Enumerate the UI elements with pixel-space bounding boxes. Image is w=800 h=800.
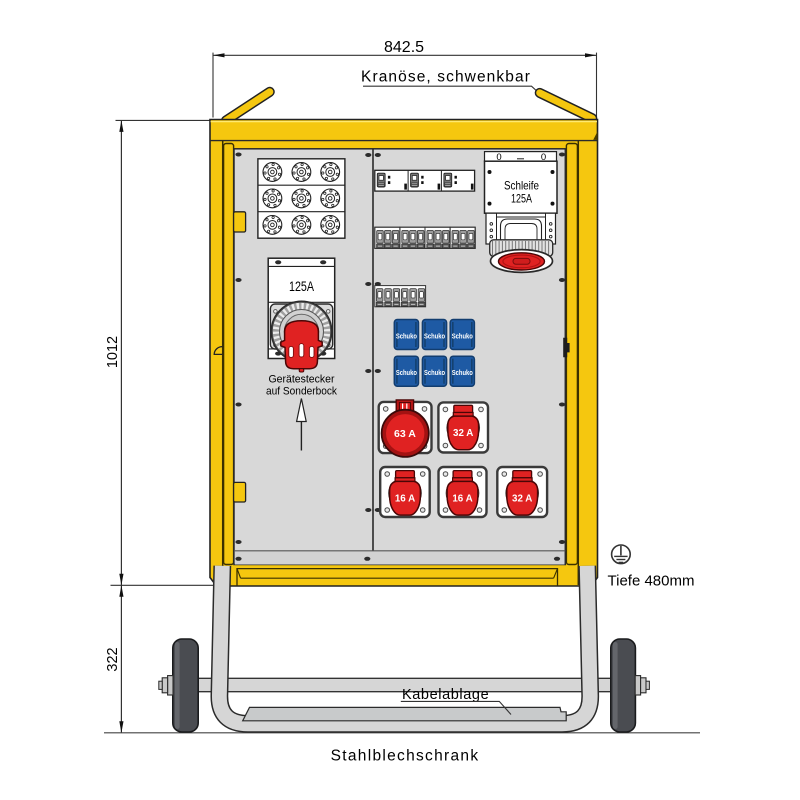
svg-text:32 A: 32 A (453, 428, 473, 439)
svg-text:Schuko: Schuko (424, 333, 445, 340)
svg-text:auf Sonderbock: auf Sonderbock (266, 386, 337, 398)
svg-text:Schuko: Schuko (452, 370, 473, 377)
svg-text:Stahlblechschrank: Stahlblechschrank (331, 748, 480, 765)
svg-text:Schuko: Schuko (396, 333, 417, 340)
svg-text:16 A: 16 A (395, 493, 415, 504)
svg-text:1012: 1012 (105, 336, 121, 368)
svg-text:Schuko: Schuko (396, 370, 417, 377)
svg-text:32 A: 32 A (512, 493, 532, 504)
svg-text:125A: 125A (511, 192, 532, 206)
svg-text:Tiefe 480mm: Tiefe 480mm (608, 573, 695, 590)
svg-text:63 A: 63 A (394, 428, 416, 440)
svg-text:Schuko: Schuko (424, 370, 445, 377)
svg-text:16 A: 16 A (452, 493, 472, 504)
svg-text:Schleife: Schleife (504, 179, 539, 193)
svg-text:125A: 125A (289, 278, 315, 294)
svg-text:842.5: 842.5 (384, 39, 424, 56)
svg-text:Kabelablage: Kabelablage (402, 687, 489, 703)
svg-text:Kranöse, schwenkbar: Kranöse, schwenkbar (361, 69, 531, 86)
svg-text:Schuko: Schuko (452, 333, 473, 340)
svg-text:322: 322 (105, 647, 121, 671)
svg-text:Gerätestecker: Gerätestecker (269, 374, 335, 386)
